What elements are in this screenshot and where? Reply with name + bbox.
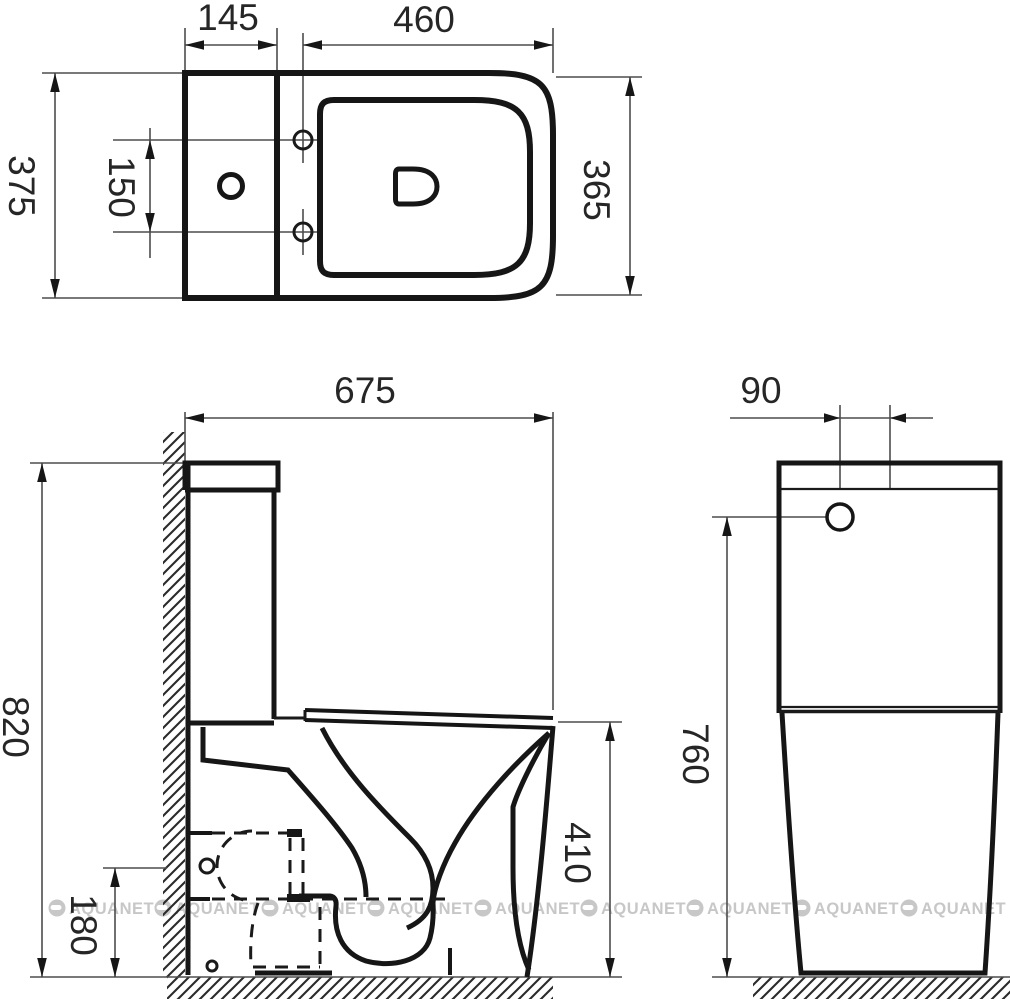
bowl-inner-front-curve — [433, 733, 549, 903]
arrowhead — [890, 413, 906, 423]
arrowhead — [605, 958, 615, 977]
arrowhead — [605, 722, 615, 741]
watermark-text: AQUANET — [601, 900, 686, 918]
arrowhead — [50, 279, 60, 298]
fixing-hole — [207, 961, 217, 971]
arrowhead — [145, 213, 155, 232]
outlet-pipe-hidden — [290, 838, 303, 895]
arrowhead — [50, 73, 60, 92]
dim-label-820: 820 — [0, 696, 36, 758]
arrowhead — [145, 140, 155, 159]
floor-hatching — [167, 977, 553, 999]
dim-label-180: 180 — [63, 894, 104, 956]
arrowhead — [303, 40, 322, 50]
flush-opening — [396, 169, 438, 204]
dim-label-675: 675 — [334, 370, 396, 411]
arrowhead — [722, 517, 732, 536]
top-view: 145 460 375 150 365 — [1, 0, 642, 298]
outlet-connector — [287, 894, 310, 902]
dim-label-460: 460 — [393, 0, 455, 40]
dim-label-150: 150 — [101, 156, 142, 218]
outlet-connector — [287, 829, 302, 837]
arrowhead — [37, 958, 47, 977]
seat-bottom-line — [305, 720, 553, 728]
wall-hatching — [163, 432, 185, 977]
arrowhead — [534, 413, 553, 423]
fixing-hole — [200, 859, 214, 873]
back-view-dimension-lines — [712, 405, 933, 977]
arrowhead — [110, 958, 120, 977]
watermark: AQUANET — [581, 900, 687, 919]
arrowhead — [824, 413, 840, 423]
bowl-underside-curve — [203, 727, 366, 897]
dim-label-365: 365 — [576, 159, 617, 221]
watermark-text: AQUANET — [921, 900, 1006, 918]
floor-hatching — [753, 977, 1010, 999]
dim-label-375: 375 — [1, 155, 42, 217]
side-view-extension-lines — [30, 412, 622, 868]
arrowhead — [37, 463, 47, 482]
watermark: AQUANET — [262, 900, 368, 919]
water-inlet-hole — [827, 504, 853, 530]
seat-top-line — [305, 710, 553, 718]
watermark-text: AQUANET — [282, 900, 367, 918]
dim-label-760: 760 — [675, 723, 716, 785]
arrowhead — [185, 413, 204, 423]
arrowhead — [258, 40, 277, 50]
arrowhead — [185, 40, 204, 50]
watermark-row: AQUANET AQUANET AQUANET AQUANET AQUANET … — [49, 900, 1007, 919]
arrowhead — [534, 40, 553, 50]
arrowhead — [625, 276, 635, 295]
arrowhead — [110, 868, 120, 887]
watermark: AQUANET — [794, 900, 900, 919]
side-view-dimension-lines — [42, 418, 610, 977]
watermark-text: AQUANET — [707, 900, 792, 918]
watermark: AQUANET — [687, 900, 793, 919]
wall-floor-lines — [30, 412, 622, 977]
dim-label-90: 90 — [740, 370, 781, 411]
toilet-dimension-drawing: AQUANET AQUANET AQUANET AQUANET AQUANET … — [0, 0, 1010, 1000]
arrowhead — [625, 77, 635, 96]
seat-opening-outline — [320, 100, 530, 275]
cistern-lid-side — [185, 463, 278, 490]
watermark-text: AQUANET — [814, 900, 899, 918]
outlet-bend-hidden — [217, 831, 252, 901]
watermark: AQUANET — [368, 900, 474, 919]
cistern-back-outline — [779, 463, 1000, 713]
technical-drawing-page: AQUANET AQUANET AQUANET AQUANET AQUANET … — [0, 0, 1010, 1000]
watermark: AQUANET — [475, 900, 581, 919]
tank-lid-hole — [220, 175, 243, 198]
dim-label-410: 410 — [557, 822, 598, 884]
arrowhead — [722, 958, 732, 977]
dim-label-145: 145 — [197, 0, 259, 38]
pedestal-back-outline — [782, 713, 998, 973]
